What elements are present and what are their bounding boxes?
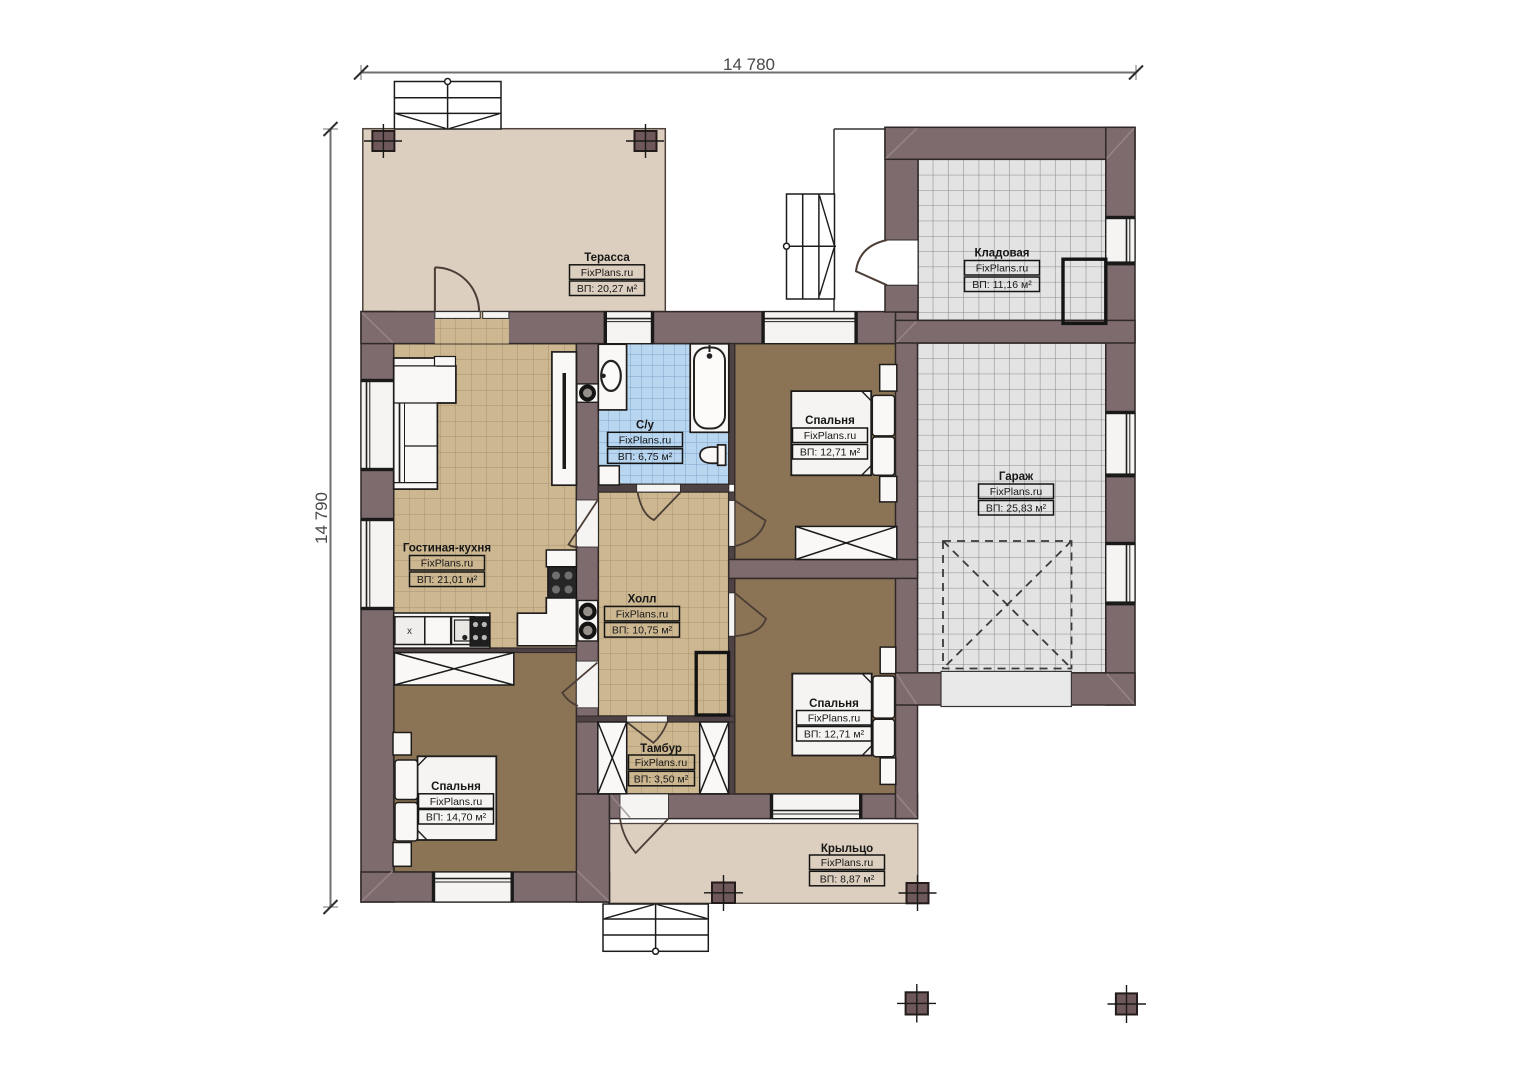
svg-text:Терасса: Терасса [584, 252, 630, 264]
svg-text:FixPlans.ru: FixPlans.ru [619, 434, 672, 446]
svg-text:FixPlans.ru: FixPlans.ru [421, 558, 474, 570]
svg-text:ВП: 6,75 м²: ВП: 6,75 м² [618, 451, 673, 463]
svg-text:ВП: 3,50 м²: ВП: 3,50 м² [634, 773, 689, 785]
svg-text:ВП: 25,83 м²: ВП: 25,83 м² [986, 503, 1047, 515]
svg-text:FixPlans.ru: FixPlans.ru [804, 430, 857, 442]
svg-text:FixPlans.ru: FixPlans.ru [635, 757, 688, 769]
svg-text:ВП: 12,71 м²: ВП: 12,71 м² [804, 729, 865, 741]
svg-text:ВП: 21,01 м²: ВП: 21,01 м² [417, 574, 478, 586]
svg-text:FixPlans.ru: FixPlans.ru [821, 857, 874, 869]
svg-text:ВП: 10,75 м²: ВП: 10,75 м² [612, 625, 673, 637]
svg-text:14 780: 14 780 [723, 55, 775, 74]
svg-text:Кладовая: Кладовая [974, 248, 1029, 260]
svg-text:FixPlans.ru: FixPlans.ru [808, 713, 861, 725]
svg-text:FixPlans.ru: FixPlans.ru [976, 263, 1029, 275]
svg-text:Гостиная-кухня: Гостиная-кухня [403, 543, 491, 555]
svg-text:Крыльцо: Крыльцо [821, 843, 873, 855]
svg-text:Холл: Холл [628, 594, 657, 606]
svg-text:x: x [407, 626, 412, 637]
svg-text:FixPlans.ru: FixPlans.ru [616, 608, 669, 620]
svg-text:14 790: 14 790 [312, 492, 331, 544]
svg-text:ВП: 12,71 м²: ВП: 12,71 м² [800, 447, 861, 459]
svg-text:Спальня: Спальня [805, 415, 855, 427]
svg-text:ВП: 14,70 м²: ВП: 14,70 м² [426, 812, 487, 824]
svg-text:Спальня: Спальня [431, 781, 481, 793]
svg-text:Спальня: Спальня [809, 698, 859, 710]
svg-text:FixPlans.ru: FixPlans.ru [990, 486, 1043, 498]
svg-text:FixPlans.ru: FixPlans.ru [430, 796, 483, 808]
svg-text:ВП: 11,16 м²: ВП: 11,16 м² [972, 279, 1032, 291]
svg-text:Тамбур: Тамбур [640, 743, 682, 755]
svg-text:FixPlans.ru: FixPlans.ru [581, 267, 634, 279]
svg-text:С/у: С/у [636, 420, 655, 432]
svg-text:ВП: 20,27 м²: ВП: 20,27 м² [577, 283, 638, 295]
svg-text:ВП: 8,87 м²: ВП: 8,87 м² [820, 873, 875, 885]
svg-text:Гараж: Гараж [999, 471, 1034, 483]
